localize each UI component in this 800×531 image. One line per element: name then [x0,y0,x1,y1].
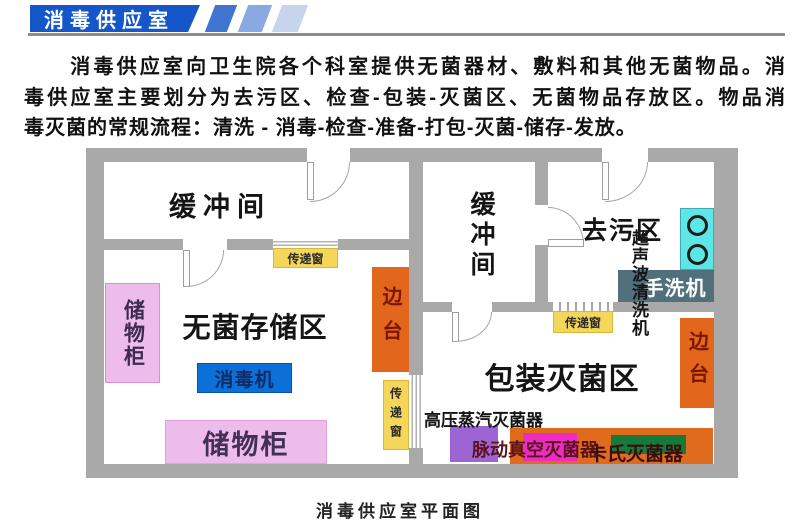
disinfector-machine: 消毒机 [197,363,292,393]
door-gap-buffer-mid [535,205,548,245]
transfer-window-storage-label: 传递窗 [287,250,323,267]
document-page: 消毒供应室 消毒供应室向卫生院各个科室提供无菌器材、敷料和其他无菌物品。消 毒供… [0,0,800,531]
intro-line-2: 毒供应室主要划分为去污区、检查-包装-灭菌区、无菌物品存放区。物品消 [24,83,786,114]
page-title: 消毒供应室 [30,4,174,33]
cabinet-left: 储物柜 [105,283,160,383]
room-label-sterile-storage: 无菌存储区 [165,306,345,346]
wall-right [714,148,738,478]
sidetable-right-label: 边台 [683,331,712,395]
wall-bottom [86,464,738,478]
door-gap-buffer-left-top [307,148,350,162]
autoclave-label: 高压蒸汽灭菌器 [424,406,543,431]
door-gap-storage [183,239,227,250]
wall-buffer-left-bottom [104,239,423,250]
cabinet-bottom: 储物柜 [165,420,327,464]
door-arc-storage [186,250,224,287]
door-arc-decontamination-top [605,162,648,202]
floorplan-caption: 消毒供应室平面图 [0,497,800,522]
sidetable-left-label: 边台 [376,286,405,354]
wall-window-divider [409,375,423,448]
door-leaf-buffer-mid [548,239,584,247]
transfer-window-packing-label: 传递窗 [565,314,601,331]
room-label-buffer-middle: 缓冲间 [463,191,499,281]
disinfector-label: 消毒机 [214,365,274,392]
transfer-window-divider: 传递窗 [383,380,409,450]
ultrasonic-label: 超声波清洗机 [626,229,651,337]
cabinet-bottom-label: 储物柜 [203,423,290,462]
door-arc-buffer-left-top [310,162,350,202]
room-label-packing-sterilization: 包装灭菌区 [462,354,662,398]
wall-left [86,148,104,478]
transfer-window-divider-label: 传递窗 [388,387,405,444]
header-divider [28,33,785,36]
banner-stripe-1 [205,5,237,32]
room-label-buffer-left: 缓冲间 [155,185,285,224]
door-gap-packing [452,302,492,312]
ultrasonic-cleaner [680,208,714,270]
cassette-label: 卡氏灭菌器 [588,439,683,466]
door-arc-packing [455,312,492,342]
transfer-window-packing: 传递窗 [553,311,613,333]
intro-line-1: 消毒供应室向卫生院各个科室提供无菌器材、敷料和其他无菌物品。消 [24,52,786,83]
banner-stripe-3 [272,5,308,32]
cabinet-left-label: 储物柜 [118,299,148,368]
intro-line-3: 毒灭菌的常规流程：清洗 - 消毒-检查-准备-打包-灭菌-储存-发放。 [24,113,786,144]
sidetable-right: 边台 [680,318,714,408]
ultrasonic-sink-2 [687,244,708,265]
ultrasonic-sink-1 [687,215,708,236]
intro-paragraph: 消毒供应室向卫生院各个科室提供无菌器材、敷料和其他无菌物品。消 毒供应室主要划分… [24,52,786,144]
banner-stripe-2 [238,5,272,32]
transfer-window-storage: 传递窗 [273,248,338,268]
door-gap-decontamination-top [602,148,648,162]
pulse-vacuum-label: 脉动真空灭菌器 [472,436,598,462]
wall-buffer-mid-right-upper [535,162,548,205]
sidetable-left: 边台 [372,267,409,372]
title-banner: 消毒供应室 [30,5,200,32]
